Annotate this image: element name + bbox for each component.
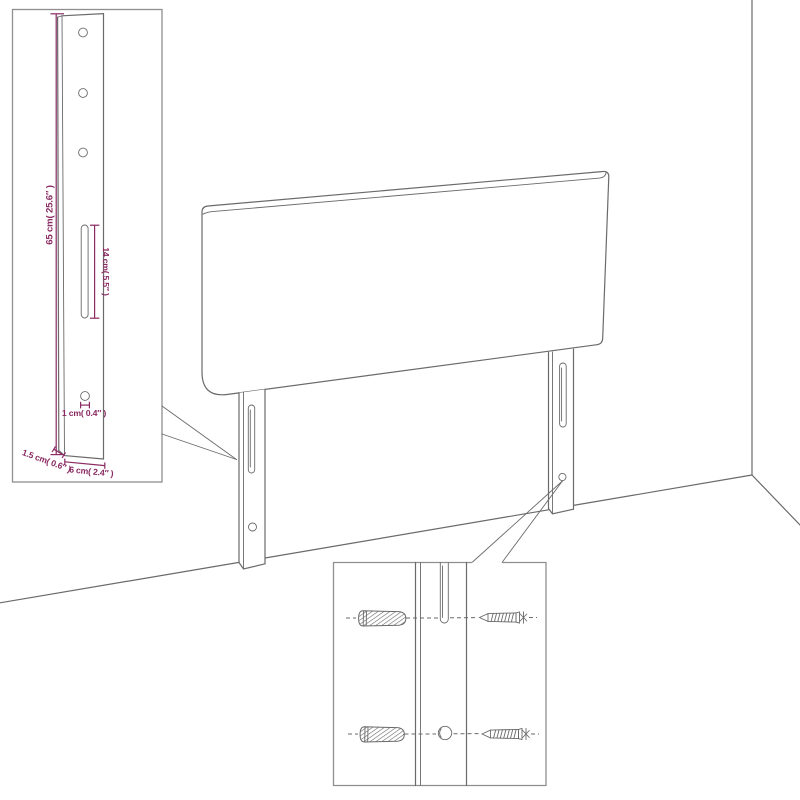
headboard-assembly-diagram: 65 cm( 25.6″ ) 14 cm( 5.5″ ) 1 cm( 0.4″ …: [0, 0, 800, 800]
headboard-panel-outline: [202, 171, 609, 394]
headboard-panel: [202, 171, 609, 394]
left-leg-body: [239, 389, 265, 569]
right-callout-line-left: [472, 481, 562, 563]
dimension-slot-length-label: 14 cm( 5.5″ ): [101, 247, 111, 296]
right-leg: [549, 349, 574, 514]
wall-plug-icon: [360, 727, 404, 742]
diagram-canvas: 65 cm( 25.6″ ) 14 cm( 5.5″ ) 1 cm( 0.4″ …: [0, 0, 800, 800]
mounting-inset-frame: [334, 563, 547, 786]
wall-plug-icon: [359, 611, 406, 626]
left-callout-line-upper: [162, 406, 237, 460]
floor-line-mid-segment: [265, 510, 549, 558]
left-callout-line-lower: [162, 434, 237, 460]
floor-line-corner-right: [752, 475, 800, 525]
left-leg: [239, 389, 265, 569]
dimension-hole-diameter-label: 1 cm( 0.4″ ): [62, 408, 107, 418]
dimension-height-label: 65 cm( 25.6″ ): [45, 185, 56, 244]
right-callout-line-right: [502, 481, 562, 563]
floor-line-left-segment: [0, 562, 239, 602]
floor-line-right-segment: [574, 475, 753, 505]
